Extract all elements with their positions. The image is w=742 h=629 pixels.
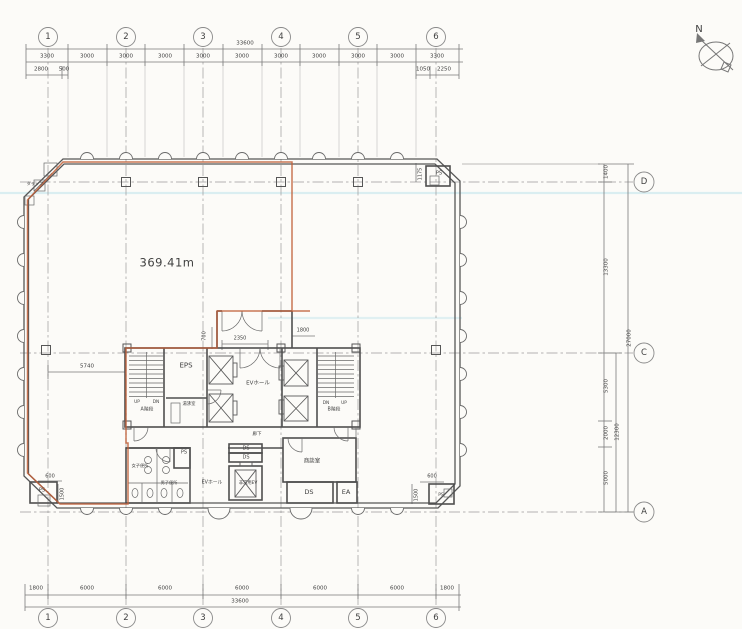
dim-interior: 1175 bbox=[419, 168, 424, 181]
dim-bottom-seg: 6000 bbox=[158, 586, 172, 592]
room-ps: PS bbox=[39, 489, 45, 494]
area-label: 369.41m bbox=[140, 257, 195, 269]
dim-bottom-seg: 1800 bbox=[440, 586, 454, 592]
dim-top-seg: 3000 bbox=[235, 54, 249, 60]
dim-right: 5000 bbox=[604, 471, 610, 485]
dim-interior: 1500 bbox=[61, 488, 66, 501]
room-ps: PS bbox=[438, 494, 444, 499]
room-ps: PS bbox=[436, 172, 442, 177]
room-stair-a: A階段 bbox=[141, 409, 154, 414]
grid-bubble-bottom-2: 2 bbox=[123, 614, 128, 623]
dim-bottom-seg: 6000 bbox=[390, 586, 404, 592]
dim-bottom-seg: 6000 bbox=[313, 586, 327, 592]
grid-bubble-bottom-5: 5 bbox=[355, 614, 360, 623]
dim-interior: 700 bbox=[203, 331, 208, 341]
dim-bottom-total: 33600 bbox=[231, 599, 249, 605]
room-ds: DS bbox=[304, 489, 313, 496]
dim-right: 2000 bbox=[604, 426, 610, 440]
room-meeting: 商談室 bbox=[304, 459, 321, 465]
dim-top-seg: 3300 bbox=[430, 54, 444, 60]
stair-b-up: UP bbox=[341, 402, 347, 406]
dim-top-seg: 3000 bbox=[312, 54, 326, 60]
dim-bottom-seg: 6000 bbox=[235, 586, 249, 592]
dim-top-seg: 3300 bbox=[40, 54, 54, 60]
dim-top-seg: 3000 bbox=[80, 54, 94, 60]
grid-bubble-top-5: 5 bbox=[355, 33, 360, 42]
dim-top-seg: 3000 bbox=[196, 54, 210, 60]
dim-top-seg: 3000 bbox=[119, 54, 133, 60]
room-ds: DS bbox=[242, 456, 249, 461]
room-stair-b: B階段 bbox=[328, 409, 341, 414]
grid-bubble-top-3: 3 bbox=[200, 33, 205, 42]
dim-right: 1400 bbox=[604, 165, 610, 179]
dim-interior: 2350 bbox=[234, 337, 247, 342]
floor-plan-scan: 1234563360033003000300030003000300030003… bbox=[0, 0, 742, 629]
stair-a-up: UP bbox=[134, 401, 140, 405]
grid-bubble-right-d: D bbox=[641, 178, 648, 187]
grid-bubble-right-c: C bbox=[641, 349, 647, 358]
dim-right: 5300 bbox=[604, 379, 610, 393]
grid-bubble-top-6: 6 bbox=[433, 33, 438, 42]
dim-interior: 1500 bbox=[415, 489, 420, 502]
dim-right: 12300 bbox=[615, 423, 621, 441]
grid-bubble-bottom-4: 4 bbox=[278, 614, 283, 623]
dim-top-seg: 3000 bbox=[390, 54, 404, 60]
dim-bottom-seg: 6000 bbox=[80, 586, 94, 592]
dim-right: 13300 bbox=[604, 258, 610, 276]
room-tarappu: タラップ bbox=[27, 182, 44, 186]
dim-top-seg: 3000 bbox=[274, 54, 288, 60]
grid-bubble-bottom-3: 3 bbox=[200, 614, 205, 623]
dim-top-sub: 2800 bbox=[34, 67, 48, 73]
room-ev-hall: EVホール bbox=[246, 381, 270, 387]
room-toilet-women: 女子便所 bbox=[132, 464, 149, 468]
grid-bubble-right-a: A bbox=[641, 508, 647, 517]
dim-top-sub: 500 bbox=[59, 67, 70, 73]
dim-interior: 600 bbox=[427, 475, 437, 480]
room-ps: PS bbox=[181, 451, 187, 456]
grid-bubble-top-2: 2 bbox=[123, 33, 128, 42]
room-corridor: 廊下 bbox=[253, 433, 262, 438]
dim-top-seg: 3000 bbox=[158, 54, 172, 60]
dim-interior: 600 bbox=[45, 475, 55, 480]
dim-interior: 5740 bbox=[80, 364, 94, 370]
room-ds: DS bbox=[242, 447, 249, 452]
room-yuwakashi: 湯沸室 bbox=[183, 403, 196, 407]
grid-bubble-top-1: 1 bbox=[45, 33, 50, 42]
stair-a-dn: DN bbox=[153, 401, 160, 405]
north-label: N bbox=[695, 25, 702, 35]
dim-top-total: 33600 bbox=[236, 41, 254, 47]
room-ev-hall-lower: EVホール bbox=[202, 482, 223, 487]
room-emergency-ev: 非常用EV bbox=[239, 482, 258, 486]
labels-layer: 1234563360033003000300030003000300030003… bbox=[0, 0, 742, 629]
dim-top-seg: 3000 bbox=[351, 54, 365, 60]
room-ea: EA bbox=[342, 489, 351, 496]
dim-top-sub: 2250 bbox=[437, 67, 451, 73]
grid-bubble-bottom-6: 6 bbox=[433, 614, 438, 623]
stair-b-dn: DN bbox=[323, 402, 330, 406]
grid-bubble-bottom-1: 1 bbox=[45, 614, 50, 623]
room-toilet-men: 男子便所 bbox=[161, 481, 178, 485]
dim-right: 27000 bbox=[627, 329, 633, 347]
dim-top-sub: 1050 bbox=[416, 67, 430, 73]
grid-bubble-top-4: 4 bbox=[278, 33, 283, 42]
room-eps: EPS bbox=[179, 363, 192, 370]
dim-interior: 1800 bbox=[297, 329, 310, 334]
dim-bottom-seg: 1800 bbox=[29, 586, 43, 592]
